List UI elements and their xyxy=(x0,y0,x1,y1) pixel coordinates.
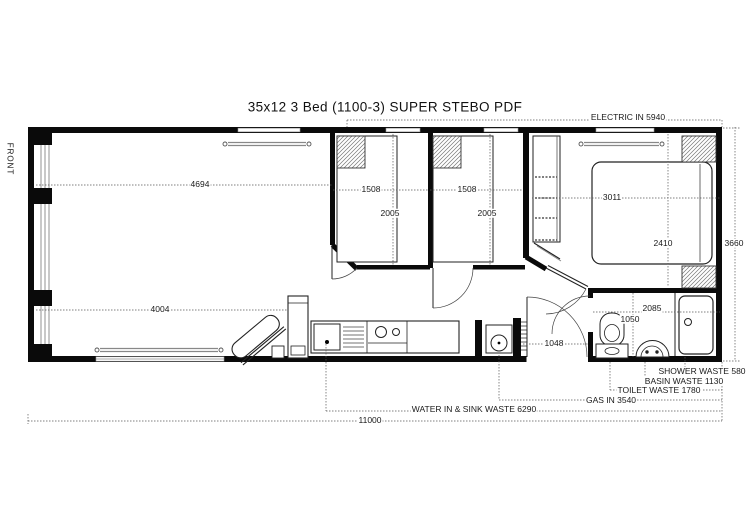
side-table xyxy=(272,346,284,358)
front-label: FRONT xyxy=(6,143,15,176)
dim-toilet-zone: 1050 xyxy=(620,315,641,324)
toilet-waste-label: TOILET WASTE 1780 xyxy=(617,386,702,395)
dim-bathroom-width: 2085 xyxy=(642,304,663,313)
bed2-locker xyxy=(433,136,461,168)
dim-lounge-bottom: 4004 xyxy=(150,305,171,314)
shower xyxy=(679,296,713,354)
tall-cabinet xyxy=(288,296,308,358)
dim-bedroom1-width: 1508 xyxy=(361,185,382,194)
basin-waste-label: BASIN WASTE 1130 xyxy=(644,376,724,385)
lounge-furniture xyxy=(229,296,308,365)
basin xyxy=(636,341,669,358)
dim-lounge-top: 4694 xyxy=(190,180,211,189)
bedroom2 xyxy=(433,136,493,308)
dim-overall-width: 3660 xyxy=(724,239,745,248)
master-bed xyxy=(592,162,712,264)
dim-overall-length: 11000 xyxy=(357,416,382,425)
door-seal-marks xyxy=(521,322,527,350)
dim-bedroom1-depth: 2005 xyxy=(380,209,401,218)
gas-appliance xyxy=(486,325,512,353)
dim-hall-door: 1048 xyxy=(544,339,565,348)
dim-bedroom2-depth: 2005 xyxy=(477,209,498,218)
floor-plan-drawing xyxy=(0,0,750,530)
bed1-locker xyxy=(337,136,365,168)
bedside-cabinet-bottom xyxy=(682,266,716,288)
floor-plan-page: 35x12 3 Bed (1100-3) SUPER STEBO PDF FRO… xyxy=(0,0,750,530)
dim-master-depth: 2410 xyxy=(653,239,674,248)
entrance-door xyxy=(527,297,587,357)
master-door xyxy=(546,266,588,315)
electric-in-label: ELECTRIC IN 5940 xyxy=(590,113,666,122)
master-bedroom xyxy=(533,136,716,314)
shower-waste-label: SHOWER WASTE 580 xyxy=(657,367,746,376)
water-in-sink-waste-label: WATER IN & SINK WASTE 6290 xyxy=(411,405,537,414)
bedside-cabinet-top xyxy=(682,136,716,162)
drawing-title: 35x12 3 Bed (1100-3) SUPER STEBO PDF xyxy=(248,100,523,115)
dim-master-width: 3011 xyxy=(602,193,622,202)
dim-bedroom2-width: 1508 xyxy=(457,185,478,194)
master-wardrobe xyxy=(533,136,561,261)
bathroom-door-arc xyxy=(552,296,590,334)
bathroom xyxy=(552,293,713,358)
gas-in-label: GAS IN 3540 xyxy=(585,395,637,404)
